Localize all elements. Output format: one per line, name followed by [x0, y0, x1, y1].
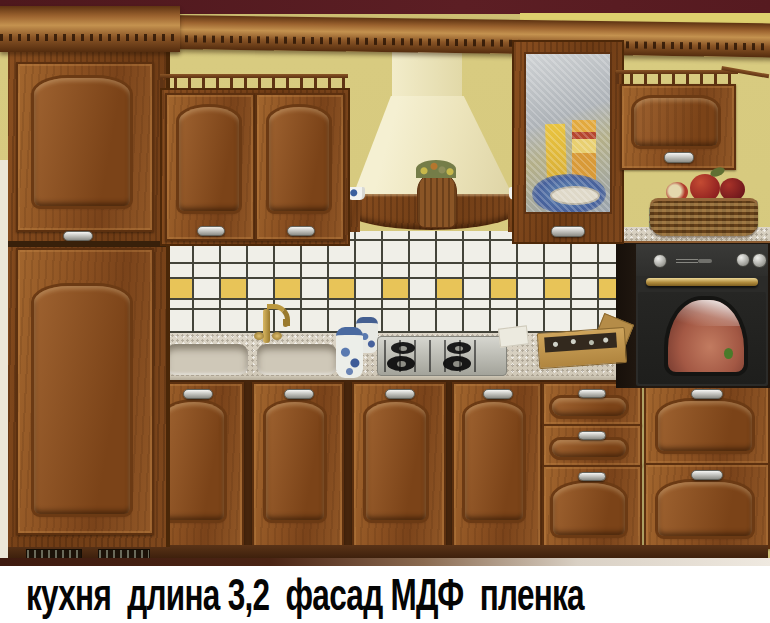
- faucet-handle-left: [254, 332, 264, 340]
- base-door-3-panel: [366, 402, 426, 520]
- oven-knob-right-1: [736, 253, 750, 267]
- tall-cabinet-crown: [0, 6, 180, 52]
- base-door-4-handle: [483, 389, 513, 399]
- tall-cabinet: [8, 50, 170, 547]
- base-door-1-panel: [164, 402, 224, 520]
- oven-window-glare: [668, 300, 744, 326]
- tall-upper-panel: [34, 78, 130, 206]
- oven-control-panel: [636, 244, 768, 276]
- kitchen-photo: кухня длина 3,2 фасад МДФ пленка: [0, 0, 770, 623]
- cooktop-grate: [384, 340, 476, 372]
- drawer-large-left-panel: [553, 483, 625, 535]
- wall-cabinet-right-door: [255, 93, 345, 241]
- glass-cabinet-handle: [551, 226, 585, 237]
- oven-drawer-1-handle: [691, 389, 723, 399]
- gas-cooktop: [377, 336, 507, 376]
- drawer-small-1-panel: [552, 398, 626, 416]
- caption-text: кухня длина 3,2 фасад МДФ пленка: [26, 572, 584, 617]
- oven-drawer-1: [644, 382, 770, 465]
- oven-window: [664, 296, 748, 376]
- caption-band: кухня длина 3,2 фасад МДФ пленка: [0, 566, 770, 623]
- cardboard-box: [537, 327, 627, 369]
- oven-drawer-2: [644, 463, 770, 549]
- oven-drawer-2-handle: [691, 470, 723, 480]
- drawer-small-1-handle: [578, 389, 606, 398]
- oven-handle: [646, 278, 758, 286]
- base-door-2: [252, 382, 344, 549]
- glass-texture: [526, 54, 610, 212]
- drawer-small-2: [542, 424, 642, 467]
- tall-cabinet-upper-door: [16, 62, 154, 232]
- sink-right-basin: [257, 344, 337, 375]
- faucet-spout-tip: [283, 319, 288, 327]
- oven-door: [638, 292, 766, 384]
- flip-up-cabinet: [620, 84, 736, 170]
- faucet-handle-right: [272, 332, 282, 340]
- base-door-2-handle: [284, 389, 314, 399]
- built-in-oven: [636, 244, 768, 386]
- oven-panel-markings: [676, 257, 698, 263]
- drawer-small-1: [542, 382, 642, 426]
- sink-left-basin: [166, 344, 248, 375]
- base-door-4-panel: [465, 402, 523, 520]
- hood-carved-basket: [417, 172, 457, 228]
- oven-knob-left: [653, 254, 667, 268]
- drawer-small-2-handle: [578, 431, 606, 440]
- oven-food-green: [724, 348, 733, 359]
- base-door-1-handle: [183, 389, 213, 399]
- tall-cabinet-lower-door: [16, 248, 154, 535]
- tall-upper-handle: [63, 231, 93, 241]
- base-door-3: [352, 382, 446, 549]
- oven-drawer-2-panel: [658, 482, 752, 536]
- dried-flowers: [416, 160, 456, 178]
- oven-brand-logo: [698, 259, 712, 263]
- glass-cabinet-glass: [524, 52, 612, 214]
- tall-crown-dentil: [0, 34, 180, 41]
- wall-right-handle: [287, 226, 315, 236]
- wall-cabinet-rail-spindles: [160, 78, 348, 88]
- glass-cabinet: [512, 40, 624, 244]
- tile-yellow-row: [165, 277, 618, 300]
- white-papers: [498, 325, 529, 347]
- wall-cabinet-left-door: [165, 93, 255, 241]
- base-door-4: [452, 382, 542, 549]
- wall-left-handle: [197, 226, 225, 236]
- wall-left-panel: [179, 107, 239, 211]
- base-door-3-handle: [385, 389, 415, 399]
- oven-knob-right-2: [752, 253, 767, 268]
- tall-lower-panel: [34, 286, 130, 514]
- tall-cabinet-gap: [8, 241, 166, 247]
- ceramic-jar-front: [336, 327, 363, 378]
- box-contents: [544, 333, 617, 353]
- wall-cabinet: [160, 88, 350, 246]
- oven-drawer-1-panel: [658, 401, 752, 451]
- drawer-large-left: [542, 465, 642, 549]
- drawer-large-left-handle: [578, 472, 606, 481]
- flip-up-handle: [664, 152, 694, 163]
- flip-cabinet-rail-spindles: [616, 74, 738, 84]
- flip-up-panel: [634, 98, 718, 146]
- faucet: [250, 302, 294, 346]
- wall-right-panel: [269, 107, 329, 211]
- base-door-2-panel: [266, 402, 324, 520]
- wicker-basket: [650, 198, 758, 236]
- cornice-dentil-molding: [95, 34, 770, 51]
- drawer-small-2-panel: [552, 440, 626, 457]
